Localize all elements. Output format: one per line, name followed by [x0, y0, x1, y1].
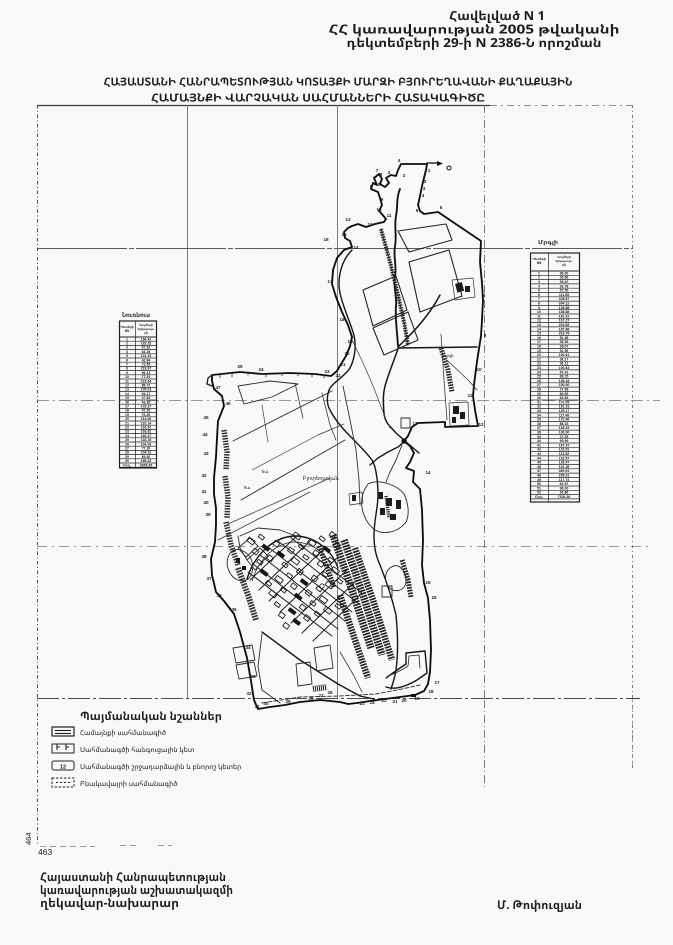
- svg-text:34: 34: [245, 645, 251, 650]
- svg-text:17: 17: [434, 680, 440, 685]
- svg-text:7: 7: [376, 168, 379, 173]
- svg-text:3805.45: 3805.45: [140, 463, 153, 467]
- svg-text:21: 21: [392, 699, 398, 704]
- svg-text:40: 40: [203, 500, 209, 505]
- svg-text:9: 9: [484, 333, 487, 338]
- svg-text:44: 44: [202, 432, 208, 437]
- svg-text:4: 4: [422, 193, 425, 198]
- svg-text:1: 1: [428, 168, 431, 173]
- svg-text:19: 19: [347, 339, 353, 344]
- svg-text:2: 2: [403, 173, 406, 178]
- svg-text:15: 15: [341, 232, 347, 237]
- svg-text:12: 12: [60, 765, 66, 771]
- svg-text:11: 11: [387, 213, 392, 218]
- svg-text:3: 3: [423, 186, 426, 191]
- svg-text:23: 23: [359, 701, 365, 706]
- svg-text:4: 4: [398, 158, 401, 163]
- svg-text:11: 11: [468, 393, 473, 398]
- svg-text:12: 12: [367, 222, 373, 227]
- svg-text:26: 26: [327, 690, 333, 695]
- svg-text:16: 16: [431, 595, 437, 600]
- svg-text:10: 10: [376, 207, 382, 212]
- svg-text:13: 13: [412, 421, 418, 426]
- svg-text:14: 14: [425, 470, 431, 475]
- svg-text:30: 30: [125, 459, 129, 463]
- svg-text:463: 463: [38, 847, 52, 857]
- svg-text:9: 9: [381, 197, 384, 202]
- svg-text:37: 37: [206, 576, 212, 581]
- svg-text:6: 6: [440, 205, 443, 210]
- svg-text:33: 33: [250, 674, 256, 679]
- svg-text:41: 41: [201, 489, 207, 494]
- svg-text:39: 39: [205, 512, 211, 517]
- svg-text:24: 24: [258, 367, 264, 372]
- svg-text:7304.36: 7304.36: [558, 495, 571, 499]
- svg-text:42: 42: [201, 473, 207, 478]
- svg-text:14: 14: [353, 245, 359, 250]
- svg-text:17: 17: [327, 279, 333, 284]
- svg-text:29: 29: [285, 699, 291, 704]
- svg-text:38: 38: [201, 554, 207, 559]
- svg-text:52: 52: [537, 491, 541, 495]
- svg-text:15: 15: [425, 580, 431, 585]
- svg-text:12: 12: [478, 422, 484, 427]
- svg-text:31: 31: [254, 704, 260, 709]
- svg-text:10: 10: [476, 367, 482, 372]
- svg-text:46: 46: [225, 401, 231, 406]
- svg-text:43: 43: [203, 451, 209, 456]
- svg-text:NN: NN: [125, 329, 130, 333]
- svg-text:5: 5: [416, 208, 419, 213]
- svg-text:NN: NN: [537, 261, 542, 265]
- svg-text:20: 20: [401, 698, 407, 703]
- svg-text:3: 3: [388, 170, 391, 175]
- svg-text:47: 47: [215, 385, 221, 390]
- svg-text:30: 30: [263, 701, 269, 706]
- svg-text:32: 32: [246, 691, 252, 696]
- svg-text:19: 19: [414, 696, 420, 701]
- svg-text:27: 27: [318, 693, 324, 698]
- svg-text:35: 35: [231, 607, 237, 612]
- svg-text:5: 5: [378, 182, 381, 187]
- svg-text:28: 28: [308, 696, 314, 701]
- svg-text:24: 24: [369, 700, 375, 705]
- svg-text:25: 25: [237, 364, 243, 369]
- svg-text:22: 22: [335, 373, 341, 378]
- svg-text:18: 18: [339, 317, 345, 322]
- svg-text:8: 8: [483, 293, 486, 298]
- svg-text:21: 21: [340, 362, 346, 367]
- svg-text:23: 23: [324, 369, 330, 374]
- svg-text:20: 20: [344, 351, 350, 356]
- svg-text:464: 464: [24, 832, 33, 845]
- svg-text:16: 16: [323, 237, 329, 242]
- svg-text:9: 9: [380, 172, 383, 177]
- svg-text:6: 6: [370, 184, 373, 189]
- svg-text:18: 18: [428, 689, 434, 694]
- svg-text:22: 22: [381, 698, 387, 703]
- svg-text:13: 13: [345, 217, 351, 222]
- svg-text:36: 36: [216, 593, 222, 598]
- svg-text:45: 45: [203, 415, 209, 420]
- svg-text:2: 2: [424, 179, 427, 184]
